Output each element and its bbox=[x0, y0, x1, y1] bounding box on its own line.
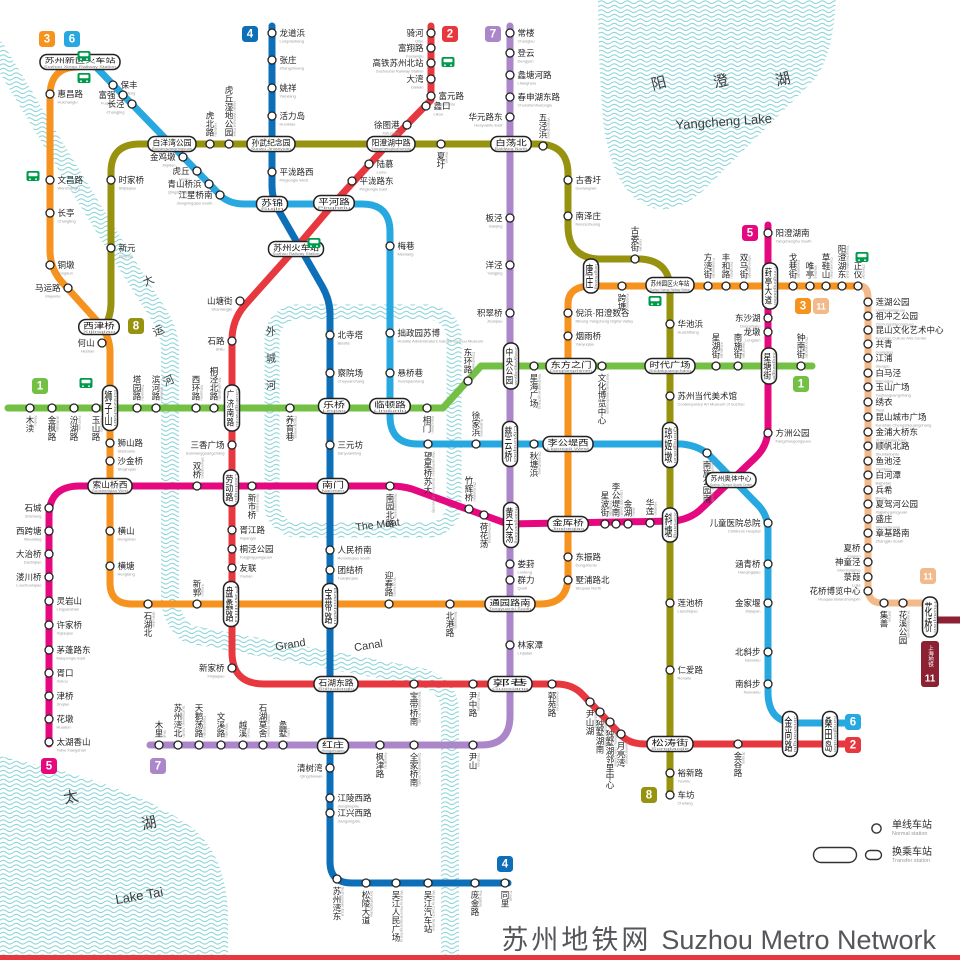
station-dot[interactable] bbox=[764, 560, 772, 568]
station-humble-administrators-garden-suzhou-museum[interactable]: 拙政园苏博Humble Administrators Garden Suzhou… bbox=[386, 328, 484, 344]
station-dot[interactable] bbox=[596, 708, 604, 716]
station-dot[interactable] bbox=[326, 566, 334, 574]
station-dot[interactable] bbox=[46, 261, 54, 269]
transfer-station-fengtingdadao[interactable]: 葑亭大道Fengtingdadao bbox=[763, 263, 778, 309]
station-shupulu-north[interactable]: 墅浦路北Shupulu North bbox=[564, 575, 610, 591]
line-11-badge[interactable]: 11 bbox=[813, 298, 829, 314]
station-dot[interactable] bbox=[471, 879, 479, 887]
station-dot[interactable] bbox=[228, 545, 236, 553]
station-dot[interactable] bbox=[45, 669, 53, 677]
station-dot[interactable] bbox=[386, 369, 394, 377]
station-dot[interactable] bbox=[427, 75, 435, 83]
station-dot[interactable] bbox=[880, 599, 888, 607]
transfer-station-sunwu-jinianyuan[interactable]: 孙武纪念园Sunwu Jinianyuan bbox=[247, 137, 295, 152]
station-dot[interactable] bbox=[45, 715, 53, 723]
station-dot[interactable] bbox=[501, 879, 509, 887]
station-dot[interactable] bbox=[46, 209, 54, 217]
station-label-zh: 夏驾河公园 bbox=[876, 499, 919, 509]
station-dot[interactable] bbox=[506, 309, 514, 317]
station-dot[interactable] bbox=[854, 282, 862, 290]
transfer-station-shihudonglu[interactable]: 石湖东路Shihudonglu bbox=[314, 677, 358, 692]
station-dot[interactable] bbox=[225, 140, 233, 148]
station-sanxiangguangchang[interactable]: 三香广场Sanxiangguangchang bbox=[186, 440, 236, 456]
station-changjing[interactable]: 长泾Changjing bbox=[106, 99, 136, 115]
station-dot[interactable] bbox=[446, 600, 454, 608]
station-dot[interactable] bbox=[144, 600, 152, 608]
line-2-badge[interactable]: 2 bbox=[845, 737, 861, 753]
station-dot[interactable] bbox=[764, 680, 772, 688]
station-dot[interactable] bbox=[174, 741, 182, 749]
station-label-en: Heshan bbox=[81, 349, 95, 354]
station-dot[interactable] bbox=[106, 527, 114, 535]
transfer-station-ciyunqiao[interactable]: 慈云桥Ciyunqiao bbox=[503, 422, 518, 467]
station-dot[interactable] bbox=[268, 112, 276, 120]
station-dot[interactable] bbox=[268, 84, 276, 92]
station-childrens-hospital[interactable]: 儿童医院总院Childrens Hospital bbox=[709, 518, 772, 534]
station-dot[interactable] bbox=[539, 142, 547, 150]
station-dot[interactable] bbox=[268, 29, 276, 37]
station-dot[interactable] bbox=[192, 404, 200, 412]
station-xutugang[interactable]: 徐图港Xutugang bbox=[374, 120, 411, 136]
station-dot[interactable] bbox=[92, 404, 100, 412]
station-dot[interactable] bbox=[838, 282, 846, 290]
transfer-station-hongzhuang[interactable]: 红庄Hongzhuang bbox=[318, 739, 349, 754]
station-fangzhougongyuan[interactable]: 方洲公园Fangzhougongyuan bbox=[764, 428, 811, 444]
station-dot[interactable] bbox=[764, 599, 772, 607]
transfer-label-zh: 唐庄 bbox=[585, 262, 594, 290]
line-1-badge[interactable]: 1 bbox=[793, 376, 809, 392]
line-3-badge[interactable]: 3 bbox=[39, 31, 55, 47]
station-dot[interactable] bbox=[236, 297, 244, 305]
station-wujiang-coach-station[interactable]: 吴江汽车站Wujiang Coach Station bbox=[423, 879, 437, 934]
station-label-en: Yaoxiang bbox=[280, 94, 296, 99]
station-wujiang-renminguangchang[interactable]: 吴江人民广场Wujiang Renminguangchang bbox=[391, 879, 405, 942]
station-dot[interactable] bbox=[624, 520, 632, 528]
station-dot[interactable] bbox=[228, 564, 236, 572]
station-dot[interactable] bbox=[864, 369, 872, 377]
station-dot[interactable] bbox=[193, 167, 201, 175]
station-dot[interactable] bbox=[248, 482, 256, 490]
station-dot[interactable] bbox=[864, 398, 872, 406]
station-zhuhuiqiao[interactable]: 竹辉桥Zhuhuiqiao bbox=[464, 475, 478, 513]
transfer-label-en: Baidang North bbox=[495, 147, 528, 151]
line-8-badge[interactable]: 8 bbox=[641, 787, 657, 803]
station-label-en: Hubeilu bbox=[214, 123, 219, 137]
station-wenhuabolanzhongxin[interactable]: 文化博览中心Wenhuabolanzhongxin bbox=[597, 362, 611, 425]
station-dot[interactable] bbox=[119, 91, 127, 99]
station-dot[interactable] bbox=[217, 741, 225, 749]
station-dot[interactable] bbox=[326, 809, 334, 817]
transfer-station-baidang-north[interactable]: 白荡北Baidang North bbox=[491, 137, 532, 152]
station-dot[interactable] bbox=[506, 49, 514, 57]
transfer-label-zh: 琼姬墩 bbox=[664, 426, 673, 465]
station-dot[interactable] bbox=[45, 738, 53, 746]
station-dot[interactable] bbox=[506, 71, 514, 79]
station-label-zh: 太湖香山 bbox=[57, 737, 91, 747]
station-dot[interactable] bbox=[666, 392, 674, 400]
station-dot[interactable] bbox=[422, 102, 430, 110]
station-dot[interactable] bbox=[864, 544, 872, 552]
station-jiangxingqiao-south[interactable]: 江星桥南Jiangxingqiao South bbox=[176, 190, 224, 206]
station-dot[interactable] bbox=[789, 282, 797, 290]
station-dot[interactable] bbox=[45, 550, 53, 558]
station-dot[interactable] bbox=[864, 298, 872, 306]
station-dot[interactable] bbox=[45, 692, 53, 700]
station-dot[interactable] bbox=[128, 100, 136, 108]
station-dot[interactable] bbox=[437, 140, 445, 148]
station-label-en: Yanyuqiao bbox=[576, 342, 595, 347]
transfer-station-guoxiang[interactable]: 郭巷Guoxiang bbox=[488, 677, 532, 692]
station-tongli[interactable]: 同里Tongli bbox=[500, 879, 514, 908]
station-dot[interactable] bbox=[385, 600, 393, 608]
station-taihu-xiangshan[interactable]: 太湖香山Taihu Xiangshan bbox=[45, 737, 91, 753]
station-dot[interactable] bbox=[864, 587, 872, 595]
station-dot[interactable] bbox=[472, 440, 480, 448]
station-dot[interactable] bbox=[45, 573, 53, 581]
station-dot[interactable] bbox=[386, 329, 394, 337]
station-dot[interactable] bbox=[326, 441, 334, 449]
station-dot[interactable] bbox=[464, 377, 472, 385]
station-dot[interactable] bbox=[864, 312, 872, 320]
transfer-station-sangtiandao[interactable]: 桑田岛Sangtiandao bbox=[823, 712, 838, 757]
station-dot[interactable] bbox=[564, 332, 572, 340]
station-dot[interactable] bbox=[506, 261, 514, 269]
transfer-station-ligongdi-west[interactable]: 李公堤西Ligongdi West bbox=[543, 437, 593, 452]
station-dot[interactable] bbox=[152, 404, 160, 412]
station-dot[interactable] bbox=[666, 320, 674, 328]
station-dot[interactable] bbox=[107, 176, 115, 184]
transfer-station-songtaojie[interactable]: 松涛街Songtaojie bbox=[647, 737, 693, 752]
station-dot[interactable] bbox=[46, 176, 54, 184]
line-5-badge[interactable]: 5 bbox=[742, 225, 758, 241]
station-dot[interactable] bbox=[106, 562, 114, 570]
station-dot[interactable] bbox=[506, 641, 514, 649]
station-dot[interactable] bbox=[193, 482, 201, 490]
station-dot[interactable] bbox=[764, 314, 772, 322]
station-dot[interactable] bbox=[45, 527, 53, 535]
station-dot[interactable] bbox=[365, 160, 373, 168]
station-dot[interactable] bbox=[734, 362, 742, 370]
station-dot[interactable] bbox=[45, 504, 53, 512]
station-dot[interactable] bbox=[155, 741, 163, 749]
station-dot[interactable] bbox=[98, 339, 106, 347]
station-dot[interactable] bbox=[506, 93, 514, 101]
station-dot[interactable] bbox=[64, 284, 72, 292]
station-dot[interactable] bbox=[864, 457, 872, 465]
station-dot[interactable] bbox=[106, 439, 114, 447]
station-dot[interactable] bbox=[427, 29, 435, 37]
station-dot[interactable] bbox=[424, 440, 432, 448]
station-dot[interactable] bbox=[465, 505, 473, 513]
transfer-station-pinghelu[interactable]: 平河路Pinghelu bbox=[314, 196, 355, 211]
station-dot[interactable] bbox=[109, 81, 117, 89]
transfer-station-laodonglu[interactable]: 劳动路Laodonglu bbox=[224, 470, 239, 506]
line-7-badge[interactable]: 7 bbox=[485, 26, 501, 42]
station-dot[interactable] bbox=[46, 90, 54, 98]
station-dot[interactable] bbox=[586, 698, 594, 706]
station-dot[interactable] bbox=[193, 600, 201, 608]
station-dot[interactable] bbox=[864, 326, 872, 334]
station-dot[interactable] bbox=[386, 242, 394, 250]
station-dot[interactable] bbox=[864, 428, 872, 436]
transfer-station-tongyuanlu-south[interactable]: 通园路南Tongyuanlu South bbox=[485, 597, 535, 612]
station-dot[interactable] bbox=[864, 383, 872, 391]
transfer-station-lindunlu[interactable]: 临顿路Lindunlu bbox=[370, 399, 411, 414]
station-dot[interactable] bbox=[646, 519, 654, 527]
station-dot[interactable] bbox=[564, 176, 572, 184]
station-dot[interactable] bbox=[764, 429, 772, 437]
station-label-zh: 龙墩 bbox=[743, 327, 761, 337]
station-dot[interactable] bbox=[712, 362, 720, 370]
station-label-en: Likou bbox=[434, 112, 444, 117]
station-dot[interactable] bbox=[410, 680, 418, 688]
station-dot[interactable] bbox=[286, 404, 294, 412]
station-dot[interactable] bbox=[722, 282, 730, 290]
station-dot[interactable] bbox=[666, 599, 674, 607]
station-label-en: Huichanglu bbox=[58, 100, 78, 105]
station-kunshan-chengshiguangchang[interactable]: 昆山城市广场Kunshan Chengshiguangchang bbox=[864, 412, 931, 428]
station-dot[interactable] bbox=[410, 741, 418, 749]
station-dot[interactable] bbox=[70, 404, 78, 412]
station-chunshenhudonglu[interactable]: 春申湖东路Chunshenhudonglu bbox=[506, 92, 561, 108]
station-label-en: Shihubei bbox=[152, 612, 157, 628]
transfer-station-nanmen[interactable]: 南门Nanmen bbox=[318, 479, 349, 494]
station-dot[interactable] bbox=[506, 560, 514, 568]
station-mayunlu[interactable]: 马运路Mayunlu bbox=[35, 283, 72, 299]
transfer-station-jinshanglu[interactable]: 金尚路Jinshanglu bbox=[783, 712, 798, 757]
station-xinjiaqiao[interactable]: 新家桥Xinjiaqiao bbox=[199, 663, 236, 679]
station-dot[interactable] bbox=[469, 680, 477, 688]
station-dot[interactable] bbox=[427, 92, 435, 100]
line-5-badge[interactable]: 5 bbox=[41, 758, 57, 774]
station-dot[interactable] bbox=[480, 511, 488, 519]
transfer-station-suzhou-olympic-sports-centre[interactable]: 苏州奥体中心Suzhou Olympic Sports Centre bbox=[706, 473, 756, 488]
station-dot[interactable] bbox=[26, 404, 34, 412]
station-dot[interactable] bbox=[179, 153, 187, 161]
line-3-badge[interactable]: 3 bbox=[795, 298, 811, 314]
station-dot[interactable] bbox=[506, 29, 514, 37]
transfer-station-shizishan[interactable]: 狮子山Shizishan bbox=[103, 386, 118, 431]
transfer-station-panlilu[interactable]: 盘蠡路Panlilu bbox=[224, 582, 239, 627]
station-suzhoubei-railway-station[interactable]: 高铁苏州北站Suzhoubei Railway Station bbox=[372, 58, 435, 74]
station-dot[interactable] bbox=[864, 486, 872, 494]
station-dot[interactable] bbox=[606, 718, 614, 726]
station-dot[interactable] bbox=[506, 214, 514, 222]
map-title: 苏州地铁网Suzhou Metro Network bbox=[501, 918, 936, 957]
transfer-station-zhongyanggongyuan[interactable]: 中央公园Zhongyanggongyuan bbox=[504, 343, 519, 389]
station-lumu[interactable]: 陆慕Lumu bbox=[365, 159, 394, 175]
station-dot[interactable] bbox=[601, 520, 609, 528]
transfer-station-suzhou-yuanqu-railway-station[interactable]: 苏州园区火车站Suzhou Yuanqu Railway Station bbox=[646, 278, 694, 293]
station-dot[interactable] bbox=[631, 255, 639, 263]
station-dot[interactable] bbox=[740, 282, 748, 290]
station-dot[interactable] bbox=[764, 519, 772, 527]
station-dot[interactable] bbox=[864, 515, 872, 523]
station-dot[interactable] bbox=[45, 646, 53, 654]
transfer-station-xietang[interactable]: 斜塘Xietang bbox=[663, 508, 678, 542]
station-dot[interactable] bbox=[666, 666, 674, 674]
station-dot[interactable] bbox=[797, 362, 805, 370]
transfer-station-suoshanqiao-west[interactable]: 索山桥西Suoshanqiao West bbox=[88, 479, 132, 494]
station-dot[interactable] bbox=[326, 764, 334, 772]
station-dot[interactable] bbox=[268, 56, 276, 64]
station-dot[interactable] bbox=[617, 730, 625, 738]
station-dot[interactable] bbox=[530, 362, 538, 370]
line-7-badge[interactable]: 7 bbox=[150, 758, 166, 774]
station-yueliangwan[interactable]: 月亮湾Yueliangwan bbox=[616, 730, 630, 768]
station-dot[interactable] bbox=[326, 794, 334, 802]
station-label-zh: 盛庄 bbox=[876, 514, 894, 524]
station-dot[interactable] bbox=[424, 879, 432, 887]
transfer-station-leqiao[interactable]: 乐桥Leqiao bbox=[319, 399, 350, 414]
station-label-zh: 狮山路 bbox=[118, 438, 144, 448]
station-dot[interactable] bbox=[133, 404, 141, 412]
legend-normal-label: 单线车站 bbox=[892, 820, 956, 831]
station-dot[interactable] bbox=[216, 191, 224, 199]
station-dot[interactable] bbox=[239, 741, 247, 749]
station-dot[interactable] bbox=[259, 741, 267, 749]
station-dot[interactable] bbox=[564, 576, 572, 584]
station-dot[interactable] bbox=[45, 597, 53, 605]
station-dot[interactable] bbox=[666, 769, 674, 777]
station-dot[interactable] bbox=[228, 441, 236, 449]
line-8-badge[interactable]: 8 bbox=[128, 318, 144, 334]
transfer-station-yangchenghuzhonglu[interactable]: 阳澄湖中路Yangchenghuzhonglu bbox=[367, 137, 415, 152]
badge-number: 6 bbox=[850, 717, 856, 729]
station-label-en: Beixiebu bbox=[745, 658, 760, 663]
station-dot[interactable] bbox=[764, 229, 772, 237]
station-dot[interactable] bbox=[107, 244, 115, 252]
line-11-badge[interactable]: 11 bbox=[920, 568, 936, 584]
station-dot[interactable] bbox=[666, 791, 674, 799]
station-dot[interactable] bbox=[564, 309, 572, 317]
station-dot[interactable] bbox=[864, 354, 872, 362]
station-dot[interactable] bbox=[864, 529, 872, 537]
station-dot[interactable] bbox=[392, 879, 400, 887]
line-1-badge[interactable]: 1 bbox=[32, 378, 48, 394]
station-dot[interactable] bbox=[427, 44, 435, 52]
station-dot[interactable] bbox=[427, 59, 435, 67]
station-dot[interactable] bbox=[704, 282, 712, 290]
station-dot[interactable] bbox=[205, 180, 213, 188]
station-dot[interactable] bbox=[268, 168, 276, 176]
station-dot[interactable] bbox=[864, 471, 872, 479]
station-dot[interactable] bbox=[506, 113, 514, 121]
station-dot[interactable] bbox=[333, 875, 341, 883]
transfer-station-guangjinanlu[interactable]: 广济南路Guangjinanlu bbox=[225, 385, 240, 431]
station-label-en: Jinfenglu bbox=[56, 416, 61, 432]
station-tongdun[interactable]: 铜墩Tongdun bbox=[46, 260, 75, 276]
line-2-badge[interactable]: 2 bbox=[442, 26, 458, 42]
transfer-station-xingtangjie[interactable]: 星塘街Xingtangjie bbox=[762, 348, 777, 384]
transfer-station-baiyangwangongyuan[interactable]: 白洋湾公园Baiyangwangongyuan bbox=[148, 137, 196, 152]
station-dot[interactable] bbox=[864, 558, 872, 566]
station-dot[interactable] bbox=[348, 177, 356, 185]
station-dot[interactable] bbox=[564, 553, 572, 561]
transfer-station-dongfangzhimen[interactable]: 东方之门Dongfangzhimen bbox=[546, 359, 596, 374]
station-label-zh: 蠡塘河路 bbox=[518, 70, 553, 80]
station-dot[interactable] bbox=[864, 340, 872, 348]
transfer-station-qiongjidun[interactable]: 琼姬墩Qiongjidun bbox=[663, 423, 678, 468]
station-dot[interactable] bbox=[703, 449, 711, 457]
transfer-station-jinsheqiao[interactable]: 金厍桥Jinsheqiao bbox=[548, 517, 589, 532]
transfer-station-huangtiandang[interactable]: 黄天荡Huangtiandang bbox=[504, 503, 519, 548]
station-dot[interactable] bbox=[864, 573, 872, 581]
station-dot[interactable] bbox=[899, 599, 907, 607]
transfer-station-huaqiao[interactable]: 花桥Huaqiao bbox=[923, 597, 938, 637]
station-dot[interactable] bbox=[45, 621, 53, 629]
transfer-station-tangzhuang[interactable]: 唐庄Tangzhuang bbox=[584, 259, 599, 293]
station-dot[interactable] bbox=[864, 442, 872, 450]
station-dot[interactable] bbox=[326, 369, 334, 377]
station-wangxingqiao-soochow-university[interactable]: 望星桥苏大Wangxingqiao Soochow University bbox=[423, 440, 437, 513]
station-dot[interactable] bbox=[376, 741, 384, 749]
station-xiajiahegongyuan[interactable]: 夏驾河公园Xiajiahegongyuan bbox=[864, 499, 918, 515]
station-dot[interactable] bbox=[764, 328, 772, 336]
station-dot[interactable] bbox=[506, 576, 514, 584]
station-dot[interactable] bbox=[469, 741, 477, 749]
shanghai-metro-11-badge[interactable]: 上海地铁11 bbox=[921, 641, 939, 687]
station-chefang[interactable]: 车坊Chefang bbox=[666, 790, 695, 806]
station-dot[interactable] bbox=[195, 741, 203, 749]
station-contemporary-art-museum-of-suzhou[interactable]: 苏州当代美术馆Contemporary Art Museum of Suzhou bbox=[666, 391, 744, 407]
line-4-badge[interactable]: 4 bbox=[497, 856, 513, 872]
transfer-station-xijinqiao[interactable]: 西津桥Xijinqiao bbox=[79, 320, 120, 335]
station-dot[interactable] bbox=[279, 741, 287, 749]
station-dot[interactable] bbox=[228, 664, 236, 672]
station-dot[interactable] bbox=[530, 440, 538, 448]
railway-icon bbox=[856, 252, 869, 262]
transfer-station-baodailu[interactable]: 宝带路Baodailu bbox=[323, 584, 338, 629]
station-dot[interactable] bbox=[210, 404, 218, 412]
station-dot[interactable] bbox=[822, 282, 830, 290]
line-6-badge[interactable]: 6 bbox=[845, 714, 861, 730]
station-likou[interactable]: 蠡口Likou bbox=[422, 101, 451, 117]
line-4-badge[interactable]: 4 bbox=[242, 26, 258, 42]
station-dot[interactable] bbox=[48, 404, 56, 412]
station-dot[interactable] bbox=[864, 500, 872, 508]
station-dot[interactable] bbox=[564, 212, 572, 220]
transfer-station-shidaiguangchang[interactable]: 时代广场Shidaiguangchang bbox=[645, 359, 695, 374]
station-dot[interactable] bbox=[598, 362, 606, 370]
station-dot[interactable] bbox=[362, 879, 370, 887]
station-donghuanlu[interactable]: 东环路Donghuanlu bbox=[463, 347, 477, 385]
station-dot[interactable] bbox=[106, 457, 114, 465]
station-dot[interactable] bbox=[423, 404, 431, 412]
station-dot[interactable] bbox=[403, 121, 411, 129]
station-dot[interactable] bbox=[228, 526, 236, 534]
line-6-badge[interactable]: 6 bbox=[64, 31, 80, 47]
station-heshan[interactable]: 何山Heshan bbox=[77, 338, 106, 354]
station-dot[interactable] bbox=[612, 520, 620, 528]
station-dot[interactable] bbox=[326, 546, 334, 554]
station-pinglonglu-east[interactable]: 平泷路东Pinglonglu East bbox=[348, 176, 394, 192]
station-dot[interactable] bbox=[228, 337, 236, 345]
station-dot[interactable] bbox=[548, 680, 556, 688]
station-dot[interactable] bbox=[386, 482, 394, 490]
station-huaqiao-bolanzhongxin[interactable]: 花桥博览中心Huaqiao Bolanzhongxin bbox=[809, 586, 872, 602]
station-dot[interactable] bbox=[618, 282, 626, 290]
station-dot[interactable] bbox=[206, 140, 214, 148]
station-dot[interactable] bbox=[764, 648, 772, 656]
station-dot[interactable] bbox=[326, 331, 334, 339]
station-label-en: Qunli bbox=[518, 586, 527, 591]
station-dot[interactable] bbox=[806, 282, 814, 290]
station-dot[interactable] bbox=[734, 740, 742, 748]
station-huqiu-wetland-park[interactable]: 虎丘湿地公园Huqiu Wetland Park bbox=[224, 85, 238, 148]
transfer-station-sujin[interactable]: 苏锦Sujin bbox=[257, 197, 288, 212]
station-dot[interactable] bbox=[864, 413, 872, 421]
